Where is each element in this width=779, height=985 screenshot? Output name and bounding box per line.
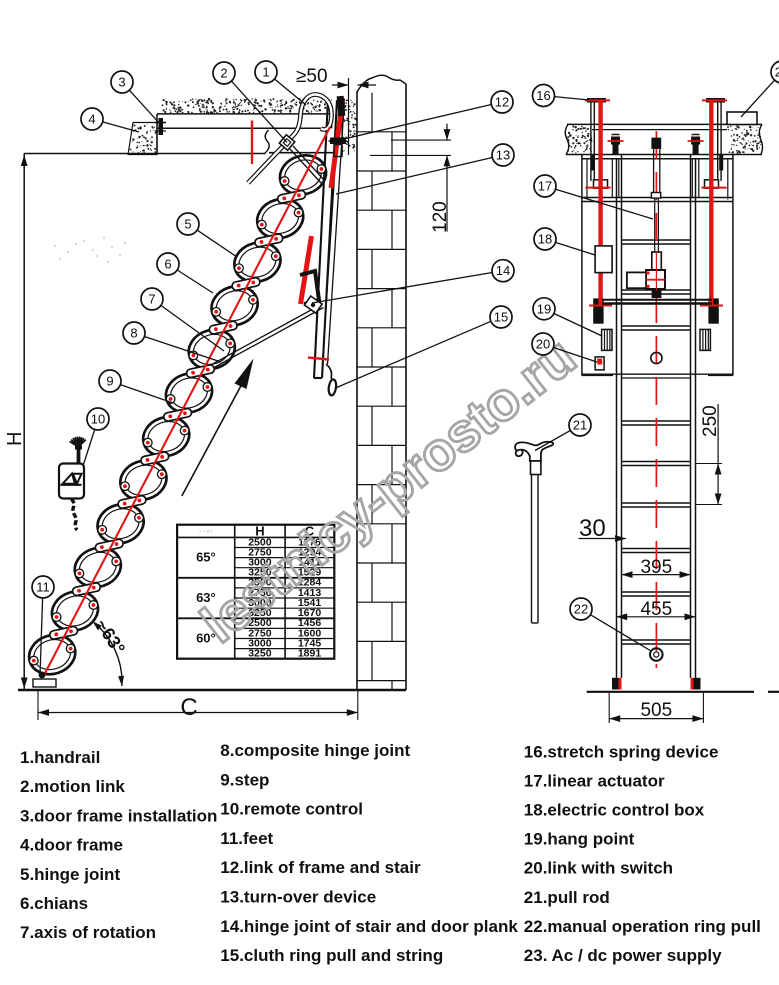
svg-text:21: 21 (573, 418, 587, 433)
svg-text:11: 11 (36, 580, 50, 595)
svg-text:4: 4 (88, 112, 95, 127)
svg-text:12.link of frame and stair: 12.link of frame and stair (220, 858, 421, 877)
svg-text:20.link with switch: 20.link with switch (524, 859, 673, 878)
svg-text:5: 5 (184, 217, 191, 232)
svg-text:23: 23 (775, 65, 779, 80)
svg-text:19.hang point: 19.hang point (524, 830, 635, 849)
svg-text:··•·: ··•· (199, 526, 214, 538)
svg-text:10: 10 (91, 412, 105, 427)
svg-text:≥50: ≥50 (296, 66, 328, 87)
svg-text:3: 3 (118, 75, 125, 90)
svg-text:6: 6 (164, 257, 171, 272)
svg-text:120: 120 (430, 201, 451, 233)
svg-text:9: 9 (106, 374, 113, 389)
svg-text:4.door frame: 4.door frame (20, 836, 123, 855)
svg-text:22: 22 (574, 602, 588, 617)
svg-text:3250: 3250 (248, 648, 272, 660)
svg-text:C: C (180, 694, 197, 721)
svg-text:2: 2 (220, 66, 227, 81)
svg-text:505: 505 (640, 700, 672, 721)
svg-text:8: 8 (130, 326, 137, 341)
svg-text:5.hinge joint: 5.hinge joint (20, 865, 120, 884)
svg-text:1.handrail: 1.handrail (20, 748, 100, 767)
svg-text:11.feet: 11.feet (220, 829, 273, 848)
svg-text:13: 13 (496, 148, 510, 163)
svg-text:18.electric control box: 18.electric control box (524, 801, 705, 820)
svg-text:2.motion link: 2.motion link (20, 777, 125, 796)
svg-text:16: 16 (536, 88, 550, 103)
svg-text:H: H (4, 432, 26, 446)
svg-text:10.remote control: 10.remote control (220, 800, 363, 819)
svg-text:12: 12 (495, 95, 509, 110)
svg-text:1: 1 (262, 65, 269, 80)
svg-text:16.stretch spring device: 16.stretch spring device (524, 743, 719, 762)
svg-text:6.chians: 6.chians (20, 894, 88, 913)
svg-text:17: 17 (538, 179, 552, 194)
svg-text:65°: 65° (196, 550, 216, 565)
svg-text:14.hinge joint of stair and do: 14.hinge joint of stair and door plank (220, 917, 518, 936)
svg-text:395: 395 (640, 557, 672, 578)
svg-text:15: 15 (494, 310, 508, 325)
svg-text:455: 455 (640, 599, 672, 620)
svg-text:14: 14 (496, 263, 510, 278)
svg-text:20: 20 (536, 337, 550, 352)
svg-text:23. Ac / dc power supply: 23. Ac / dc power supply (524, 946, 722, 965)
svg-text:9.step: 9.step (220, 770, 269, 789)
svg-text:7.axis of rotation: 7.axis of rotation (20, 923, 156, 942)
svg-text:22.manual operation ring pull: 22.manual operation ring pull (524, 917, 761, 936)
svg-text:250: 250 (700, 405, 721, 437)
svg-text:7: 7 (148, 292, 155, 307)
svg-text:1891: 1891 (298, 648, 322, 660)
svg-text:8.composite hinge joint: 8.composite hinge joint (220, 741, 410, 760)
svg-text:18: 18 (538, 232, 552, 247)
svg-text:17.linear actuator: 17.linear actuator (524, 772, 665, 791)
svg-text:15.cluth ring pull and string: 15.cluth ring pull and string (220, 946, 443, 965)
svg-text:13.turn-over device: 13.turn-over device (220, 888, 376, 907)
svg-text:19: 19 (537, 301, 551, 316)
svg-text:21.pull rod: 21.pull rod (524, 888, 610, 907)
svg-text:3.door frame installation: 3.door frame installation (20, 806, 217, 825)
